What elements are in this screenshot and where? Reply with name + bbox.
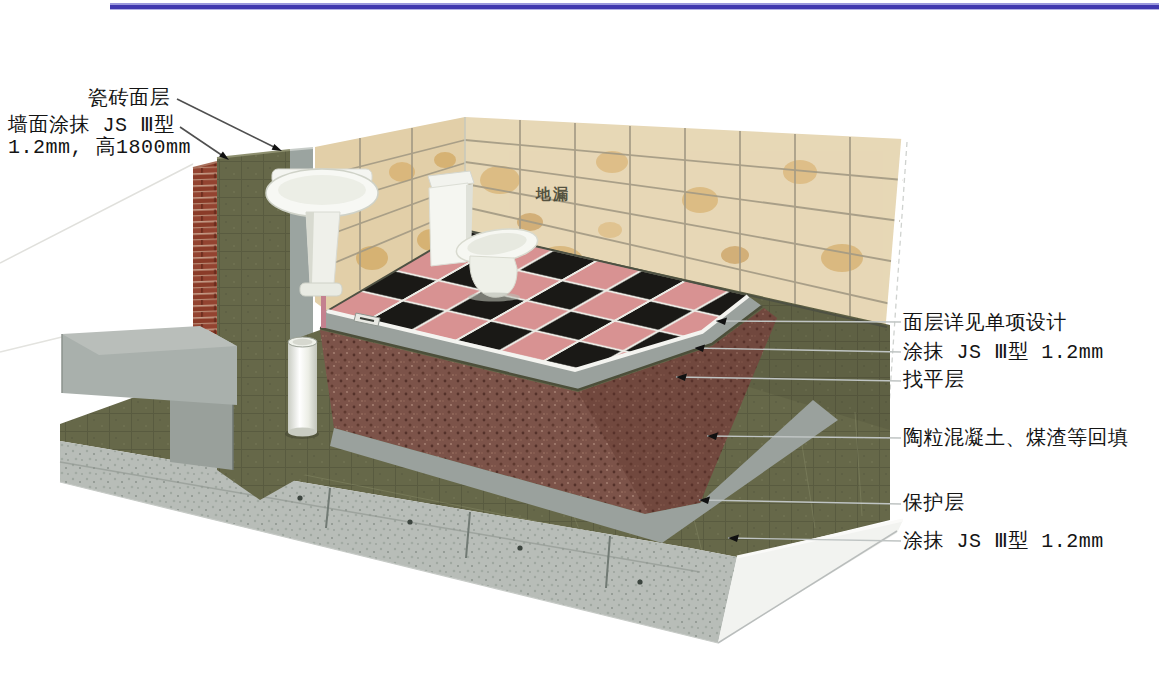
drain-pipe xyxy=(288,337,317,437)
label-surface-layer-note: 面层详见单项设计 xyxy=(903,312,1067,335)
label-wall-coating-line2: 1.2mm, 高1800mm xyxy=(8,136,191,159)
sink-drain-pipe xyxy=(321,296,326,328)
label-leveling-layer: 找平层 xyxy=(903,369,965,392)
construction-detail-figure: 瓷砖面层 墙面涂抹 JS Ⅲ型 1.2mm, 高1800mm 面层详见单项设计 … xyxy=(0,0,1159,698)
label-protection-layer: 保护层 xyxy=(903,492,965,515)
label-tile-surface-layer: 瓷砖面层 xyxy=(88,87,170,110)
label-wall-coating-line1: 墙面涂抹 JS Ⅲ型 xyxy=(8,114,175,137)
label-coating-js3-lower: 涂抹 JS Ⅲ型 1.2mm xyxy=(903,530,1104,553)
label-floor-drain: 地漏 xyxy=(536,185,570,204)
label-backfill-layer: 陶粒混凝土、煤渣等回填 xyxy=(903,427,1129,450)
label-coating-js3-upper: 涂抹 JS Ⅲ型 1.2mm xyxy=(903,341,1104,364)
